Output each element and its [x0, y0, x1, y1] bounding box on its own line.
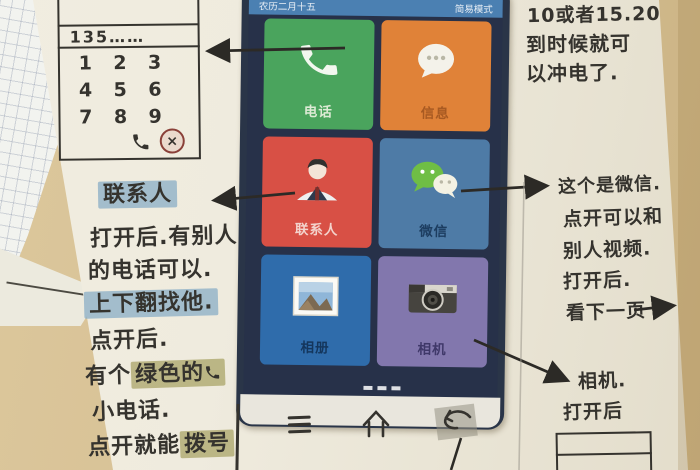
app-label: 电话: [304, 100, 333, 120]
camera-icon: [406, 256, 459, 338]
photo-of-annotated-sketch: 135…… 1 2 3 4 5 6 7 8 9 × 农历二月十五 简易模式: [0, 0, 700, 470]
phone-screenshot: 农历二月十五 简易模式 电话: [236, 0, 510, 430]
app-tile-wechat[interactable]: 微信: [378, 138, 490, 250]
phone-screen: 农历二月十五 简易模式 电话: [243, 0, 503, 398]
contact-person-icon: [291, 137, 344, 219]
menu-icon[interactable]: [288, 416, 312, 438]
dialed-number: 135……: [70, 27, 146, 47]
app-tile-phone[interactable]: 电话: [263, 18, 375, 130]
note-line: 到时候就可: [526, 27, 631, 58]
photo-album-icon: [292, 255, 339, 337]
note-line: 点开就能拨号: [87, 424, 234, 461]
app-tile-messages[interactable]: 信息: [380, 20, 492, 132]
dialer-key[interactable]: 2: [102, 52, 137, 74]
note-line: 10或者15.20: [527, 0, 661, 28]
note-line: 看下一页: [566, 296, 647, 326]
back-icon[interactable]: [436, 406, 476, 438]
dialer-key[interactable]: 6: [137, 79, 172, 101]
dialer-key[interactable]: 4: [68, 79, 103, 101]
note-line: 小电话.: [91, 392, 170, 427]
note-line: 上下翻找他.: [84, 283, 219, 319]
app-label: 相册: [300, 336, 329, 356]
mode-label: 简易模式: [455, 1, 493, 16]
note-line: 打开后: [563, 396, 624, 425]
phone-handset-icon: [296, 19, 341, 101]
note-line: 点开后.: [89, 321, 168, 356]
message-bubble-icon: [410, 21, 461, 103]
note-line: 这个是微信.: [558, 169, 662, 199]
dialer-key[interactable]: 9: [138, 106, 173, 128]
note-line: 有个绿色的: [84, 354, 225, 391]
note-line: 别人视频.: [563, 233, 652, 263]
page-indicator: [363, 386, 400, 390]
divider: [556, 452, 652, 456]
next-sketch-box: [556, 431, 653, 470]
app-label: 微信: [419, 220, 448, 240]
app-grid: 电话 信息: [260, 18, 492, 367]
desk-edge-shadow: [678, 0, 700, 470]
app-label: 相机: [417, 338, 446, 358]
app-tile-contacts[interactable]: 联系人: [261, 136, 373, 248]
dialer-keypad: 1 2 3 4 5 6 7 8 9: [68, 52, 173, 129]
note-line: 相机.: [578, 365, 627, 394]
note-line: 打开后.有别人: [90, 217, 238, 253]
dialer-key[interactable]: 5: [103, 79, 138, 101]
note-line: 打开后.: [563, 265, 632, 294]
lunar-date-label: 农历二月十五: [259, 0, 316, 13]
app-tile-camera[interactable]: 相机: [377, 256, 489, 368]
note-line: 的电话可以.: [88, 251, 213, 285]
app-label: 信息: [421, 102, 450, 122]
dialer-key[interactable]: 3: [137, 52, 172, 74]
note-line: 点开可以和: [563, 201, 664, 231]
dialer-key[interactable]: 7: [68, 106, 103, 128]
wechat-icon: [407, 138, 462, 220]
handset-icon[interactable]: [131, 131, 151, 151]
note-line: 以冲电了.: [526, 56, 619, 87]
note-contacts-title: 联系人: [98, 175, 178, 208]
app-tile-album[interactable]: 相册: [260, 254, 372, 366]
dialer-key[interactable]: 8: [103, 106, 138, 128]
dialer-key[interactable]: 1: [68, 52, 103, 74]
dialer-sketch: 135…… 1 2 3 4 5 6 7 8 9 ×: [57, 0, 201, 161]
status-bar: 农历二月十五 简易模式: [249, 0, 503, 18]
home-icon[interactable]: [360, 408, 392, 440]
app-label: 联系人: [295, 218, 339, 239]
circled-x-icon[interactable]: ×: [160, 128, 185, 153]
